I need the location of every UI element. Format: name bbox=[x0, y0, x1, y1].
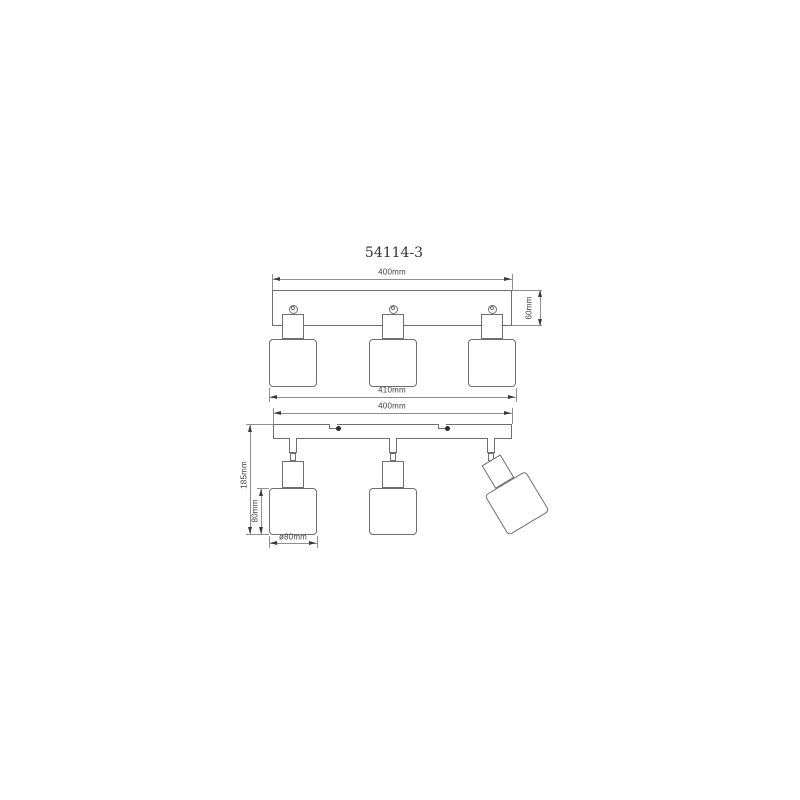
drawing-canvas: 54114-3 400mm 60mm bbox=[0, 0, 800, 800]
lamp-stem-tip bbox=[390, 453, 396, 461]
lamp-stem-tip bbox=[290, 453, 296, 461]
lamp-neck bbox=[382, 461, 404, 488]
lamp-stem bbox=[389, 438, 397, 453]
dim-arrow bbox=[248, 527, 252, 534]
dim-label-410mm: 410mm bbox=[378, 386, 406, 395]
dim-label-60mm: 60mm bbox=[525, 296, 534, 319]
lamp-shade bbox=[468, 339, 516, 387]
dim-line-410mm bbox=[269, 397, 516, 398]
lamp-neck bbox=[282, 461, 304, 488]
dim-arrow bbox=[270, 541, 277, 545]
dim-label-400mm-top: 400mm bbox=[378, 268, 406, 277]
lamp-neck bbox=[382, 314, 404, 339]
lamp-shade bbox=[269, 339, 317, 387]
dim-line-400mm-top bbox=[272, 279, 512, 280]
lamp-shade bbox=[369, 488, 417, 535]
dim-arrow bbox=[538, 290, 542, 297]
drawing-title: 54114-3 bbox=[365, 245, 423, 261]
dim-arrow bbox=[504, 411, 511, 415]
dim-arrow bbox=[259, 489, 263, 496]
hanging-ring-inner bbox=[490, 306, 494, 310]
lamp-neck bbox=[282, 314, 304, 339]
extension-line bbox=[512, 408, 513, 424]
dim-arrow bbox=[508, 395, 515, 399]
dim-arrow bbox=[248, 425, 252, 432]
dim-arrow bbox=[309, 541, 316, 545]
lamp-shade bbox=[269, 488, 317, 535]
dim-label-185mm: 185mm bbox=[240, 461, 249, 489]
extension-line bbox=[516, 388, 517, 402]
dim-arrow bbox=[504, 277, 511, 281]
dim-label-400mm-bottom: 400mm bbox=[378, 402, 406, 411]
extension-line bbox=[317, 536, 318, 548]
screw-dot bbox=[445, 426, 450, 431]
lamp-shade bbox=[369, 339, 417, 387]
dim-line-400mm-bottom bbox=[273, 413, 512, 414]
hanging-ring-inner bbox=[391, 306, 395, 310]
dim-label-80mm: 80mm bbox=[251, 499, 260, 522]
tilted-lamp-group bbox=[470, 448, 549, 536]
hanging-ring-inner bbox=[291, 306, 295, 310]
lamp-neck bbox=[481, 314, 503, 339]
lamp-stem bbox=[289, 438, 297, 453]
dim-label-diameter-80mm: ø80mm bbox=[279, 533, 307, 542]
screw-dot bbox=[336, 426, 341, 431]
lamp-stem bbox=[487, 438, 495, 453]
dim-arrow bbox=[273, 277, 280, 281]
dim-arrow bbox=[274, 411, 281, 415]
dim-arrow bbox=[259, 527, 263, 534]
dim-arrow bbox=[538, 319, 542, 326]
bottom-view-bar bbox=[273, 424, 512, 439]
dim-arrow bbox=[270, 395, 277, 399]
extension-line bbox=[512, 274, 513, 290]
